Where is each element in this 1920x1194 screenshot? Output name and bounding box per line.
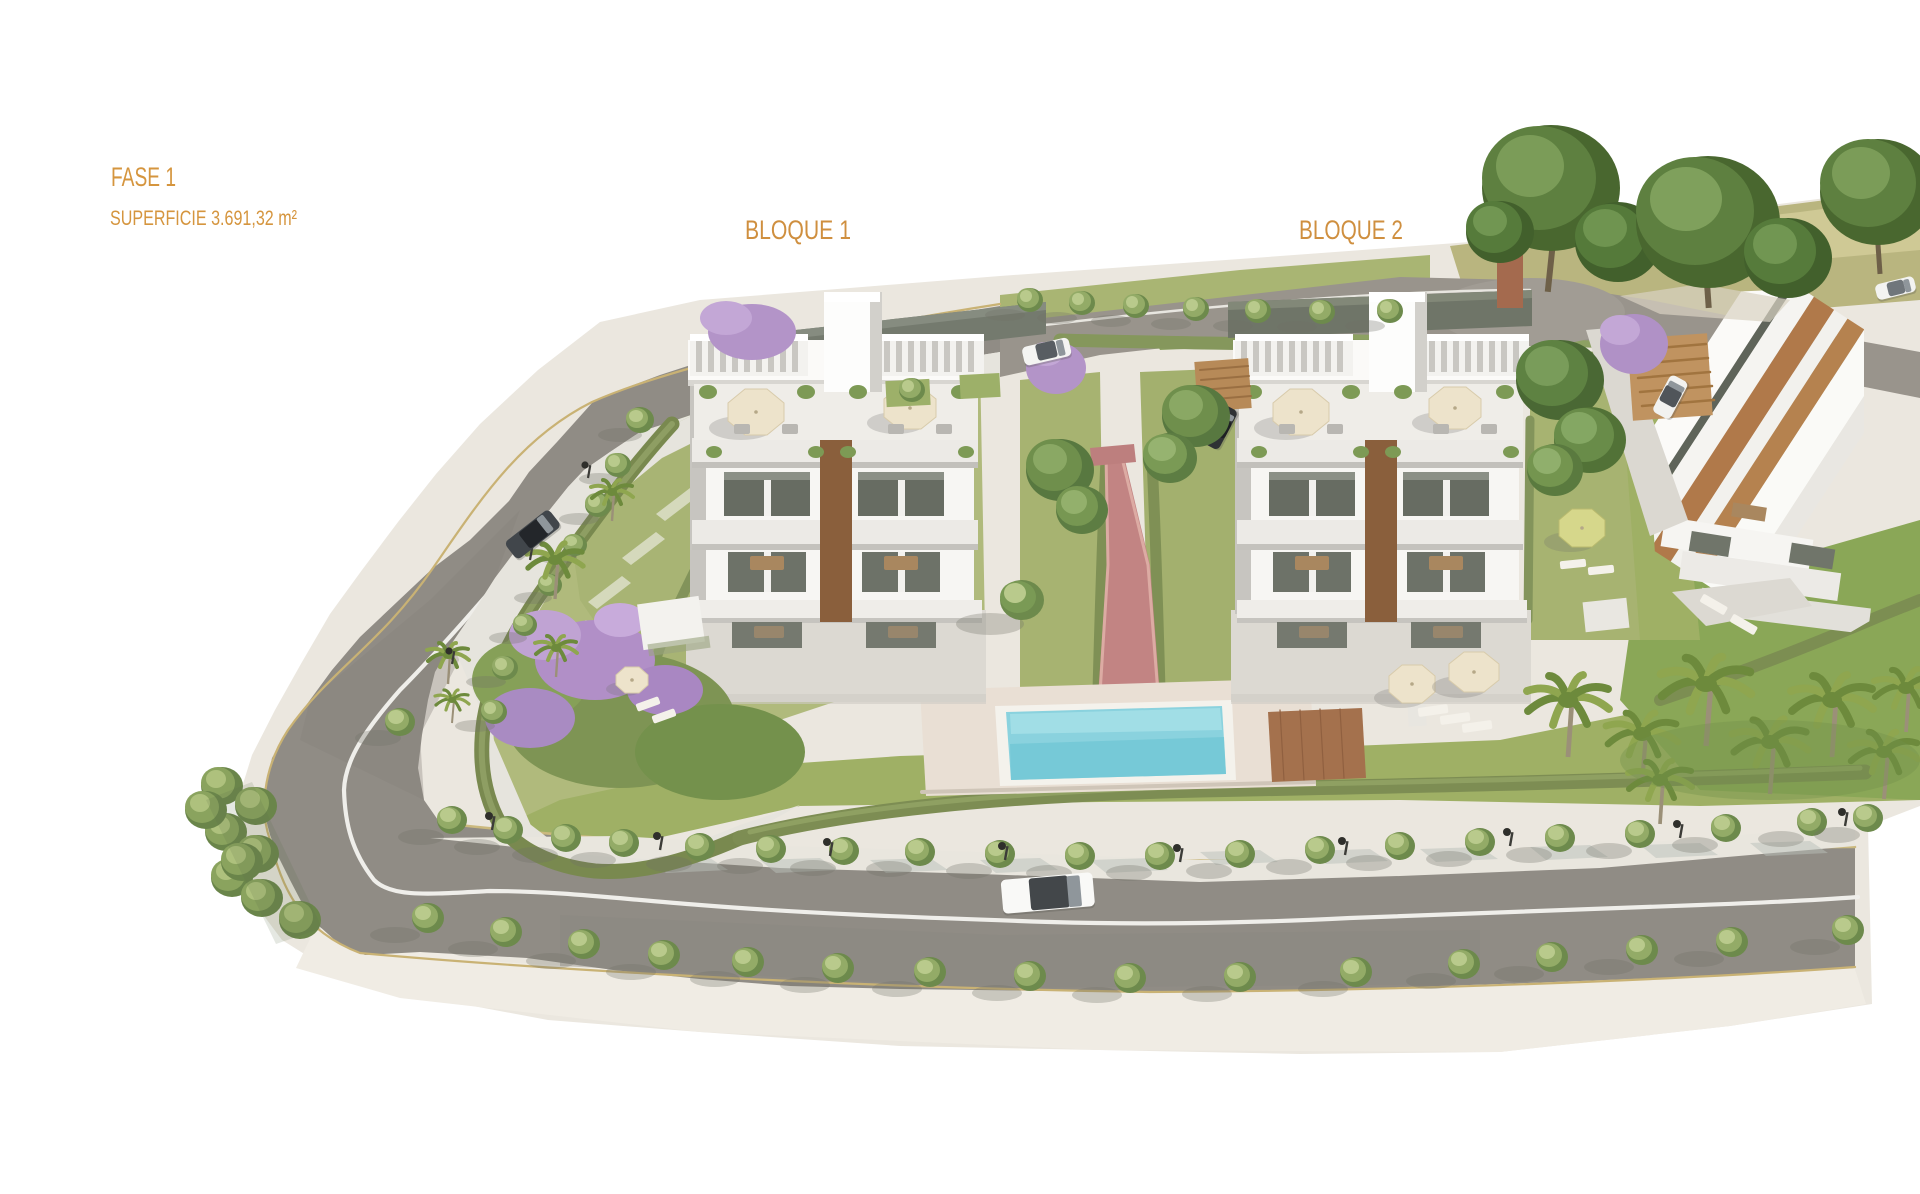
svg-text:BLOQUE 2: BLOQUE 2	[1299, 215, 1403, 245]
svg-text:BLOQUE 1: BLOQUE 1	[745, 215, 851, 245]
svg-text:SUPERFICIE 3.691,32 m²: SUPERFICIE 3.691,32 m²	[110, 207, 297, 230]
svg-text:FASE 1: FASE 1	[111, 162, 176, 192]
